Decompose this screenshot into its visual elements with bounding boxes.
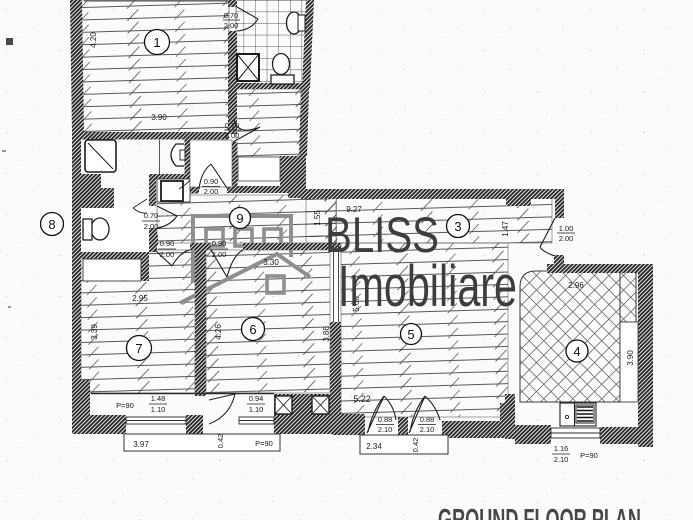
svg-text:P=90: P=90 <box>255 439 273 448</box>
svg-text:0.90: 0.90 <box>212 239 227 248</box>
svg-text:0.88: 0.88 <box>378 415 393 424</box>
svg-text:3.90: 3.90 <box>151 113 167 122</box>
svg-text:0.42: 0.42 <box>411 438 420 453</box>
svg-text:0.88: 0.88 <box>420 415 435 424</box>
svg-text:4: 4 <box>573 344 580 359</box>
svg-text:3.90: 3.90 <box>626 350 635 366</box>
svg-text:1.48: 1.48 <box>151 394 166 403</box>
svg-text:0.90: 0.90 <box>160 239 175 248</box>
svg-text:1.55: 1.55 <box>313 210 322 226</box>
svg-text:5: 5 <box>407 327 414 342</box>
svg-text:2.00: 2.00 <box>225 131 240 140</box>
svg-text:P=90: P=90 <box>116 401 134 410</box>
svg-text:0.94: 0.94 <box>249 394 264 403</box>
svg-text:3.97: 3.97 <box>133 440 149 449</box>
svg-text:4.20: 4.20 <box>89 32 98 48</box>
svg-text:1.00: 1.00 <box>559 224 574 233</box>
svg-text:1: 1 <box>153 35 160 50</box>
svg-text:0.70: 0.70 <box>224 11 239 20</box>
svg-text:1.10: 1.10 <box>151 405 166 414</box>
svg-text:0.70: 0.70 <box>225 121 240 130</box>
svg-text:2.95: 2.95 <box>132 294 148 303</box>
svg-text:2.00: 2.00 <box>204 187 219 196</box>
svg-text:1.47: 1.47 <box>501 221 510 237</box>
svg-text:2.34: 2.34 <box>366 442 382 451</box>
svg-text:P=90: P=90 <box>580 451 598 460</box>
svg-text:4.26: 4.26 <box>214 324 223 340</box>
svg-text:2.10: 2.10 <box>378 425 393 434</box>
svg-text:GROUND FLOOR PLAN: GROUND FLOOR PLAN <box>438 504 641 520</box>
svg-text:3.30: 3.30 <box>263 258 279 267</box>
svg-text:3: 3 <box>454 219 461 234</box>
svg-text:3.86: 3.86 <box>322 326 331 342</box>
svg-text:2.10: 2.10 <box>420 425 435 434</box>
svg-text:0.70: 0.70 <box>144 211 159 220</box>
svg-text:7: 7 <box>135 341 142 356</box>
svg-text:2.00: 2.00 <box>144 222 159 231</box>
svg-text:1.10: 1.10 <box>249 405 264 414</box>
svg-text:0.90: 0.90 <box>204 177 219 186</box>
svg-text:Imobiliare: Imobiliare <box>338 254 517 319</box>
svg-text:2.00: 2.00 <box>160 250 175 259</box>
svg-text:2.00: 2.00 <box>212 250 227 259</box>
svg-text:5.22: 5.22 <box>353 394 371 404</box>
svg-text:6: 6 <box>249 322 256 337</box>
svg-text:2.00: 2.00 <box>559 234 574 243</box>
svg-text:2.96: 2.96 <box>568 281 584 290</box>
svg-text:2.10: 2.10 <box>554 455 569 464</box>
svg-text:0.42: 0.42 <box>216 434 225 449</box>
svg-text:3.39: 3.39 <box>90 324 99 340</box>
svg-text:9: 9 <box>236 211 243 226</box>
svg-text:1.16: 1.16 <box>554 444 569 453</box>
svg-text:8: 8 <box>48 217 55 232</box>
svg-text:2.00: 2.00 <box>224 21 239 30</box>
